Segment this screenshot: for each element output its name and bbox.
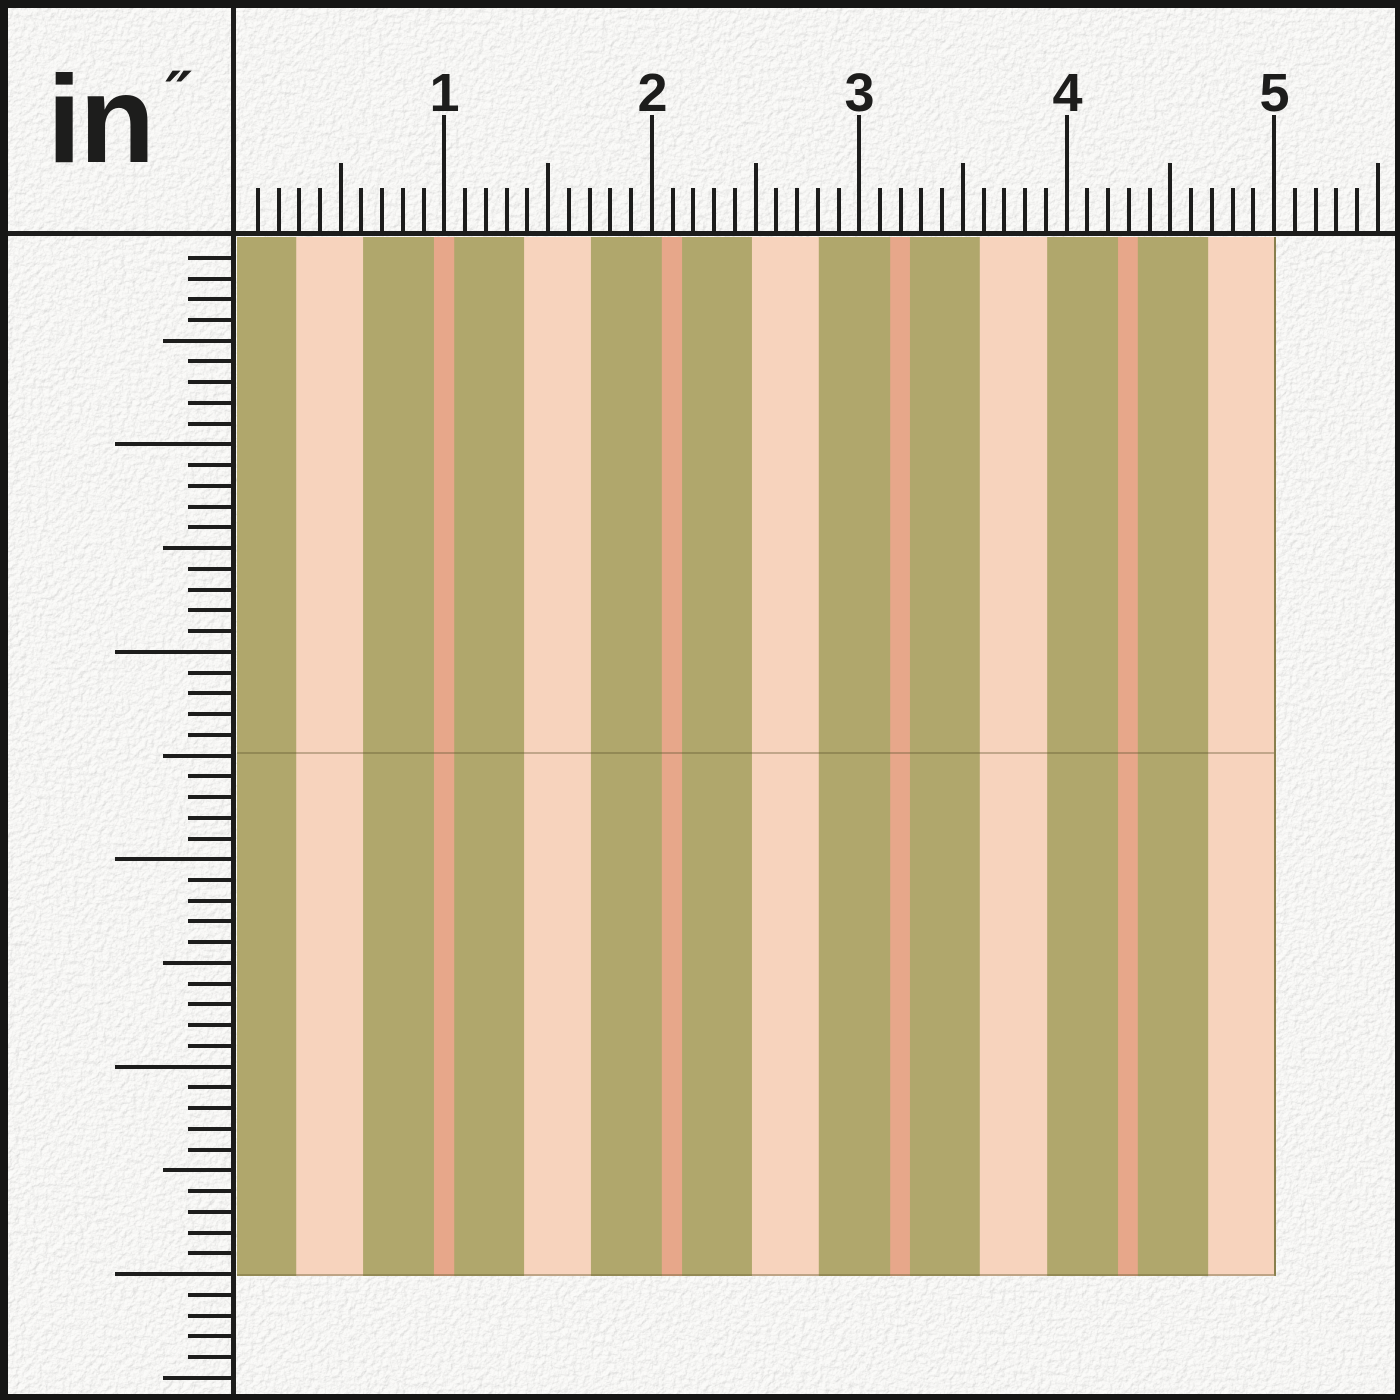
minor-tick <box>837 188 841 236</box>
minor-tick <box>188 525 236 529</box>
minor-tick <box>188 318 236 322</box>
minor-tick <box>795 188 799 236</box>
minor-tick <box>1293 188 1297 236</box>
half-inch-tick <box>163 754 236 758</box>
minor-tick <box>188 1127 236 1131</box>
half-inch-tick <box>754 163 758 236</box>
half-inch-tick <box>163 1376 236 1380</box>
minor-tick <box>188 1210 236 1214</box>
minor-tick <box>318 188 322 236</box>
minor-tick <box>484 188 488 236</box>
minor-tick <box>188 629 236 633</box>
frame-border-left <box>0 0 8 1400</box>
minor-tick <box>1334 188 1338 236</box>
minor-tick <box>188 837 236 841</box>
minor-tick <box>422 188 426 236</box>
minor-tick <box>982 188 986 236</box>
half-inch-tick <box>339 163 343 236</box>
minor-tick <box>188 505 236 509</box>
half-inch-tick <box>1376 163 1380 236</box>
inch-tick <box>1272 115 1276 236</box>
unit-label: in ″ <box>8 8 231 231</box>
minor-tick <box>525 188 529 236</box>
minor-tick <box>188 277 236 281</box>
half-inch-tick <box>546 163 550 236</box>
minor-tick <box>188 878 236 882</box>
minor-tick <box>188 484 236 488</box>
inch-tick <box>115 1272 236 1276</box>
frame-border-top <box>0 0 1400 8</box>
minor-tick <box>188 401 236 405</box>
horizontal-ruler-number-4: 4 <box>1052 66 1081 120</box>
minor-tick <box>188 899 236 903</box>
inch-tick <box>857 115 861 236</box>
half-inch-tick <box>163 1168 236 1172</box>
minor-tick <box>188 608 236 612</box>
minor-tick <box>1085 188 1089 236</box>
minor-tick <box>256 188 260 236</box>
minor-tick <box>188 567 236 571</box>
minor-tick <box>188 982 236 986</box>
minor-tick <box>188 297 236 301</box>
half-inch-tick <box>163 339 236 343</box>
minor-tick <box>188 1314 236 1318</box>
unit-text: in <box>47 58 153 182</box>
minor-tick <box>188 588 236 592</box>
minor-tick <box>188 1002 236 1006</box>
minor-tick <box>1127 188 1131 236</box>
minor-tick <box>188 1231 236 1235</box>
minor-tick <box>188 691 236 695</box>
minor-tick <box>567 188 571 236</box>
frame-border-right <box>1395 0 1400 1400</box>
inch-tick <box>115 857 236 861</box>
frame-border-bottom <box>0 1394 1400 1400</box>
minor-tick <box>1210 188 1214 236</box>
minor-tick <box>1251 188 1255 236</box>
minor-tick <box>463 188 467 236</box>
minor-tick <box>1355 188 1359 236</box>
minor-tick <box>188 1148 236 1152</box>
fabric-swatch <box>237 237 1276 1276</box>
minor-tick <box>188 774 236 778</box>
minor-tick <box>188 816 236 820</box>
minor-tick <box>277 188 281 236</box>
minor-tick <box>940 188 944 236</box>
inch-tick <box>115 650 236 654</box>
minor-tick <box>588 188 592 236</box>
minor-tick <box>188 1355 236 1359</box>
minor-tick <box>671 188 675 236</box>
minor-tick <box>1231 188 1235 236</box>
vertical-ruler-baseline <box>231 0 236 1400</box>
half-inch-tick <box>961 163 965 236</box>
minor-tick <box>188 1106 236 1110</box>
inch-tick <box>115 442 236 446</box>
minor-tick <box>188 359 236 363</box>
minor-tick <box>774 188 778 236</box>
minor-tick <box>188 380 236 384</box>
horizontal-ruler-number-1: 1 <box>429 66 458 120</box>
minor-tick <box>188 671 236 675</box>
minor-tick <box>712 188 716 236</box>
minor-tick <box>188 1085 236 1089</box>
minor-tick <box>816 188 820 236</box>
minor-tick <box>629 188 633 236</box>
minor-tick <box>188 940 236 944</box>
minor-tick <box>1106 188 1110 236</box>
minor-tick <box>188 1251 236 1255</box>
minor-tick <box>188 463 236 467</box>
minor-tick <box>919 188 923 236</box>
inch-tick <box>442 115 446 236</box>
minor-tick <box>188 1023 236 1027</box>
minor-tick <box>401 188 405 236</box>
minor-tick <box>188 919 236 923</box>
minor-tick <box>188 422 236 426</box>
minor-tick <box>188 256 236 260</box>
inch-mark-icon: ″ <box>165 64 192 124</box>
minor-tick <box>359 188 363 236</box>
minor-tick <box>1023 188 1027 236</box>
minor-tick <box>1314 188 1318 236</box>
horizontal-ruler-number-2: 2 <box>637 66 666 120</box>
minor-tick <box>188 1189 236 1193</box>
minor-tick <box>188 712 236 716</box>
minor-tick <box>188 733 236 737</box>
minor-tick <box>608 188 612 236</box>
fabric-swatch-mockup: 12345 12345 in ″ <box>0 0 1400 1400</box>
inch-tick <box>650 115 654 236</box>
half-inch-tick <box>163 961 236 965</box>
half-inch-tick <box>163 546 236 550</box>
minor-tick <box>1189 188 1193 236</box>
inch-tick <box>115 1065 236 1069</box>
minor-tick <box>1148 188 1152 236</box>
minor-tick <box>380 188 384 236</box>
minor-tick <box>188 795 236 799</box>
inch-tick <box>1065 115 1069 236</box>
minor-tick <box>297 188 301 236</box>
half-inch-tick <box>1168 163 1172 236</box>
minor-tick <box>1044 188 1048 236</box>
minor-tick <box>691 188 695 236</box>
horizontal-ruler-number-3: 3 <box>844 66 873 120</box>
minor-tick <box>188 1293 236 1297</box>
minor-tick <box>1002 188 1006 236</box>
horizontal-ruler-number-5: 5 <box>1259 66 1288 120</box>
minor-tick <box>733 188 737 236</box>
minor-tick <box>505 188 509 236</box>
minor-tick <box>878 188 882 236</box>
pattern-repeat-seam <box>237 752 1274 754</box>
minor-tick <box>188 1044 236 1048</box>
minor-tick <box>899 188 903 236</box>
minor-tick <box>188 1334 236 1338</box>
horizontal-ruler-baseline <box>0 231 1400 236</box>
